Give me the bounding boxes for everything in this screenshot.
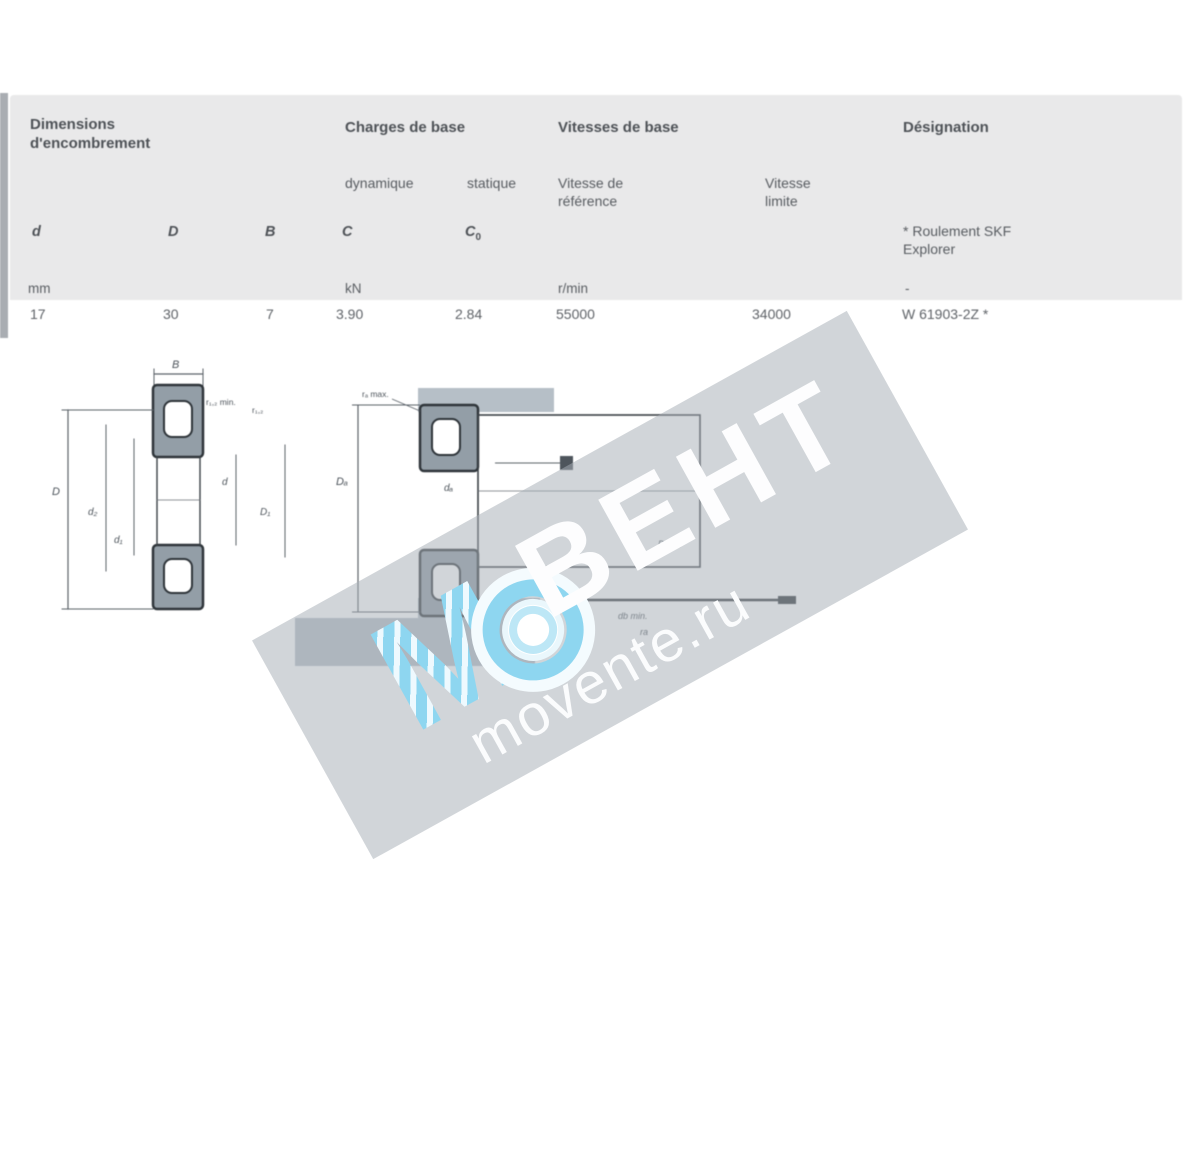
- cell-lim-speed: 34000: [752, 306, 791, 322]
- subheader-dynamic: dynamique: [345, 174, 414, 192]
- col-group-speeds: Vitesses de base: [558, 119, 679, 138]
- ref-speed-line1: Vitesse de: [558, 174, 623, 192]
- symbol-d: d: [32, 224, 41, 240]
- dimensions-line2: d'encombrement: [30, 135, 150, 154]
- symbol-C0: C0: [465, 224, 481, 243]
- bearing-cross-section-figure: B D d₂ d₁: [52, 359, 285, 609]
- subheader-static: statique: [467, 174, 516, 192]
- subheader-ref-speed: Vitesse de référence: [558, 174, 623, 210]
- page-edge-strip: [0, 93, 8, 338]
- unit-speeds: r/min: [558, 281, 588, 296]
- fig1-label-d2: d₂: [88, 507, 98, 518]
- designation-note: * Roulement SKF Explorer: [903, 222, 1011, 258]
- cell-D: 30: [163, 306, 179, 322]
- fig1-label-r12: r₁,₂ min.: [206, 397, 236, 407]
- unit-designation: -: [905, 281, 910, 296]
- fig1-label-r12b: r₁,₂: [252, 405, 263, 415]
- designation-note-line1: * Roulement SKF: [903, 222, 1011, 240]
- lim-speed-line1: Vitesse: [765, 174, 811, 192]
- page: Dimensions d'encombrement Charges de bas…: [0, 0, 1200, 1165]
- col-group-designation: Désignation: [903, 119, 989, 138]
- symbol-C0-sub: 0: [475, 232, 481, 243]
- col-group-dimensions: Dimensions d'encombrement: [30, 116, 150, 154]
- fig2-label-ra: rₐ max.: [362, 389, 389, 399]
- cell-d: 17: [30, 306, 46, 322]
- col-group-loads: Charges de base: [345, 119, 465, 138]
- symbol-D: D: [168, 224, 178, 240]
- fig1-label-B: B: [172, 359, 179, 371]
- unit-loads: kN: [345, 281, 362, 296]
- cell-C0: 2.84: [455, 306, 482, 322]
- cell-designation: W 61903-2Z *: [902, 306, 988, 322]
- ref-speed-line2: référence: [558, 192, 623, 210]
- unit-dims: mm: [28, 281, 51, 296]
- fig1-label-D1: D₁: [260, 507, 270, 518]
- fig2-label-da: dₐ: [444, 483, 454, 494]
- dimensions-line1: Dimensions: [30, 116, 150, 135]
- fig1-label-D: D: [52, 486, 60, 498]
- designation-note-line2: Explorer: [903, 240, 1011, 258]
- lim-speed-line2: limite: [765, 192, 811, 210]
- cell-B: 7: [266, 306, 274, 322]
- symbol-B: B: [265, 224, 275, 240]
- subheader-lim-speed: Vitesse limite: [765, 174, 811, 210]
- cell-ref-speed: 55000: [556, 306, 595, 322]
- symbol-C: C: [342, 224, 352, 240]
- fig1-label-d1: d₁: [114, 535, 123, 546]
- fig2-label-Da: Dₐ: [336, 476, 348, 488]
- cell-C: 3.90: [336, 306, 363, 322]
- fig1-label-d: d: [222, 477, 228, 488]
- symbol-C0-base: C: [465, 224, 475, 240]
